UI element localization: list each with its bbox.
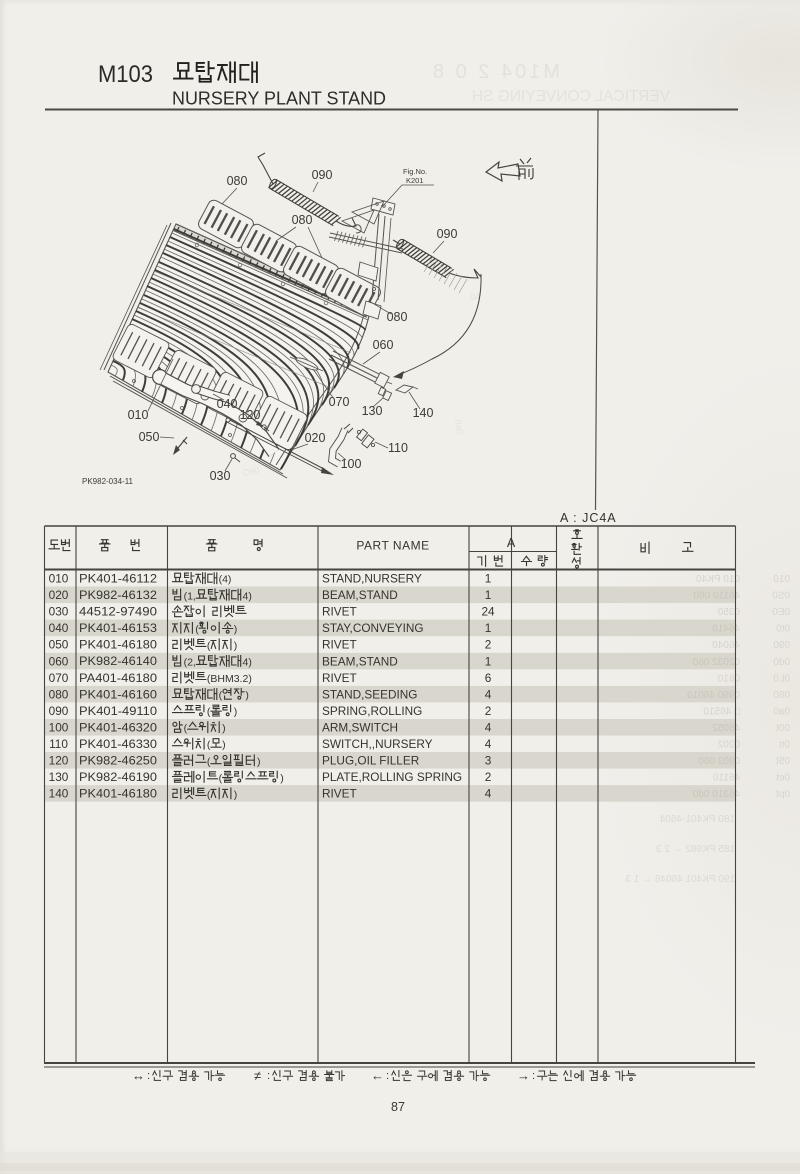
svg-text:RIVET: RIVET	[322, 638, 357, 652]
svg-text:0tt: 0tt	[779, 740, 790, 751]
svg-text:): )	[222, 723, 226, 735]
svg-text:STAND,SEEDING: STAND,SEEDING	[322, 687, 417, 701]
svg-text:4: 4	[485, 737, 492, 751]
svg-text:4): 4)	[243, 657, 252, 669]
svg-text:090: 090	[312, 168, 333, 182]
svg-text:(: (	[207, 756, 211, 768]
svg-text::: :	[267, 1070, 270, 1082]
svg-text:185 PK982 ← 2 3: 185 PK982 ← 2 3	[656, 844, 735, 855]
svg-text:24: 24	[481, 605, 495, 619]
svg-text:130: 130	[49, 770, 69, 784]
svg-text:(4): (4)	[219, 574, 232, 586]
svg-text:(: (	[184, 723, 188, 735]
svg-text:020: 020	[305, 431, 326, 445]
svg-text:(: (	[195, 623, 199, 635]
svg-text:1: 1	[485, 654, 492, 668]
svg-text:0E0: 0E0	[772, 607, 790, 618]
svg-text:0et: 0et	[776, 773, 790, 784]
svg-text:): )	[234, 789, 238, 801]
svg-text:(: (	[219, 772, 223, 784]
svg-text:140: 140	[413, 406, 434, 420]
svg-text:PK401-49110: PK401-49110	[79, 704, 157, 718]
svg-text:060: 060	[49, 654, 69, 668]
svg-text:PK401-46180: PK401-46180	[79, 787, 157, 801]
svg-text:100: 100	[341, 457, 362, 471]
svg-text:(: (	[207, 706, 211, 718]
svg-text:SPRING,ROLLING: SPRING,ROLLING	[322, 704, 422, 718]
svg-text:010: 010	[49, 572, 69, 586]
svg-text:05t: 05t	[776, 756, 790, 767]
svg-text::: :	[147, 1070, 150, 1082]
svg-text:BEAM,STAND: BEAM,STAND	[322, 588, 398, 602]
svg-text:PK401-46180: PK401-46180	[79, 638, 157, 652]
svg-text:040: 040	[49, 621, 69, 635]
svg-text:A: A	[507, 536, 516, 550]
svg-text:(BHM3.2): (BHM3.2)	[207, 673, 252, 685]
svg-text:080: 080	[227, 174, 248, 188]
svg-text:1: 1	[485, 572, 492, 586]
svg-text:PK982-46140: PK982-46140	[79, 654, 157, 668]
svg-text::: :	[386, 1070, 389, 1082]
svg-text:PLUG,OIL FILLER: PLUG,OIL FILLER	[322, 754, 419, 768]
svg-text:→: →	[517, 1068, 530, 1083]
svg-text:4): 4)	[243, 590, 252, 602]
svg-text:080: 080	[387, 310, 408, 324]
svg-text:180 PK401-4604: 180 PK401-4604	[659, 814, 735, 825]
svg-text:010: 010	[773, 574, 790, 585]
svg-text:SWITCH,,NURSERY: SWITCH,,NURSERY	[322, 737, 433, 751]
svg-text:(2,: (2,	[184, 657, 196, 669]
svg-text:2: 2	[485, 770, 492, 784]
svg-text:010: 010	[128, 408, 149, 422]
svg-text:46310 0d0: 46310 0d0	[692, 789, 740, 800]
svg-text:0350: 0350	[717, 607, 740, 618]
svg-text:44512-97490: 44512-97490	[79, 605, 157, 619]
svg-text:020: 020	[49, 588, 69, 602]
svg-text:): )	[234, 706, 238, 718]
svg-text:130: 130	[362, 404, 383, 418]
svg-text:050: 050	[49, 638, 69, 652]
svg-text:RIVET: RIVET	[322, 671, 357, 685]
svg-text:PK982-46190: PK982-46190	[79, 770, 157, 784]
svg-text:120: 120	[240, 408, 261, 422]
svg-text:4: 4	[485, 720, 492, 734]
svg-text:RIVET: RIVET	[322, 787, 357, 801]
svg-text:1: 1	[485, 588, 492, 602]
svg-text:←: ←	[371, 1068, 384, 1083]
svg-text:090: 090	[437, 227, 458, 241]
svg-text:120: 120	[49, 754, 69, 768]
svg-text:0903 060: 0903 060	[698, 756, 740, 767]
svg-text:): )	[222, 739, 226, 751]
svg-text:NURSERY PLANT STAND: NURSERY PLANT STAND	[172, 88, 386, 109]
svg-text:STAY,CONVEYING: STAY,CONVEYING	[322, 621, 424, 635]
svg-text:0d0: 0d0	[773, 657, 790, 668]
svg-text:O90: O90	[242, 465, 260, 478]
svg-text:1: 1	[485, 621, 492, 635]
svg-text:↔: ↔	[132, 1068, 145, 1083]
svg-text:RIVET: RIVET	[322, 605, 357, 619]
svg-text:0pt: 0pt	[776, 789, 790, 800]
svg-text:4: 4	[485, 687, 492, 701]
svg-text:090: 090	[49, 704, 69, 718]
svg-text:4: 4	[485, 787, 492, 801]
svg-text:BEAM,STAND: BEAM,STAND	[322, 654, 398, 668]
svg-text:A : JC4A: A : JC4A	[560, 511, 617, 525]
svg-text:2: 2	[485, 704, 492, 718]
svg-text:≠: ≠	[254, 1068, 261, 1083]
svg-text:0a0: 0a0	[453, 419, 465, 436]
svg-text:0a0: 0a0	[773, 706, 790, 717]
svg-text:04: 04	[470, 292, 480, 302]
svg-text:K201: K201	[406, 176, 424, 185]
svg-text:87: 87	[391, 1100, 405, 1114]
svg-text:(: (	[207, 739, 211, 751]
svg-text:0810: 0810	[717, 673, 740, 684]
svg-text:M104 2 0 8: M104 2 0 8	[430, 61, 560, 83]
svg-text:070: 070	[329, 395, 350, 409]
svg-text:080: 080	[773, 690, 790, 701]
svg-text:PK982-034-11: PK982-034-11	[82, 477, 134, 486]
svg-text:050: 050	[139, 430, 160, 444]
svg-text:): )	[234, 623, 238, 635]
svg-text:00t: 00t	[776, 723, 790, 734]
svg-text:110: 110	[49, 737, 68, 751]
svg-text:): )	[280, 772, 284, 784]
svg-text:110: 110	[388, 441, 408, 455]
svg-text:): )	[245, 690, 249, 702]
svg-text:040: 040	[217, 397, 238, 411]
svg-text:0t0: 0t0	[776, 624, 790, 635]
svg-text:080: 080	[49, 687, 69, 701]
svg-text:PK401-46153: PK401-46153	[79, 621, 157, 635]
svg-text:190 PK401 46046 ← 1 3: 190 PK401 46046 ← 1 3	[625, 874, 735, 885]
svg-text:46110 080: 46110 080	[693, 591, 740, 602]
svg-text:ARM,SWITCH: ARM,SWITCH	[322, 720, 398, 734]
svg-text:0L0: 0L0	[773, 673, 790, 684]
svg-text:060: 060	[373, 338, 394, 352]
svg-text:0S0: 0S0	[772, 591, 790, 602]
svg-text:PA401-46180: PA401-46180	[79, 671, 157, 685]
svg-text:□ 46510: □ 46510	[703, 706, 740, 717]
svg-text:010 PK40: 010 PK40	[696, 574, 740, 585]
svg-text:2: 2	[485, 638, 492, 652]
svg-text:0202: 0202	[717, 740, 740, 751]
svg-text:030: 030	[49, 605, 69, 619]
svg-text:080: 080	[292, 213, 313, 227]
svg-text:): )	[234, 640, 238, 652]
svg-text:070: 070	[49, 671, 69, 685]
svg-text:02032 060: 02032 060	[692, 657, 740, 668]
svg-text:PK401-46160: PK401-46160	[79, 687, 157, 701]
svg-text:STAND,NURSERY: STAND,NURSERY	[322, 572, 422, 586]
svg-text:Fig.No.: Fig.No.	[403, 167, 427, 176]
svg-text:PART NAME: PART NAME	[356, 539, 429, 553]
svg-text:140: 140	[49, 787, 69, 801]
svg-text:PK401-46112: PK401-46112	[79, 572, 157, 586]
svg-text:): )	[257, 756, 261, 768]
svg-text:(1,: (1,	[184, 590, 196, 602]
svg-text:PK401-46330: PK401-46330	[79, 737, 157, 751]
svg-text:PK401-46320: PK401-46320	[79, 721, 157, 735]
svg-text:VERTICAL CONVEYING SH: VERTICAL CONVEYING SH	[472, 88, 670, 105]
svg-text:6: 6	[485, 671, 492, 685]
svg-text:100: 100	[49, 720, 69, 734]
svg-text:PK982-46250: PK982-46250	[79, 754, 157, 768]
svg-text:PLATE,ROLLING SPRING: PLATE,ROLLING SPRING	[322, 770, 462, 784]
svg-text:090: 090	[773, 640, 790, 651]
svg-text:M103: M103	[98, 61, 153, 88]
svg-text::: :	[532, 1070, 535, 1082]
svg-text:(: (	[207, 640, 211, 652]
svg-text:(: (	[219, 690, 223, 702]
svg-text:030: 030	[210, 469, 231, 483]
svg-text:PK982-46132: PK982-46132	[79, 588, 157, 602]
svg-text:(: (	[207, 789, 211, 801]
svg-text:3: 3	[485, 754, 492, 768]
svg-text:0990 46010: 0990 46010	[687, 690, 740, 701]
